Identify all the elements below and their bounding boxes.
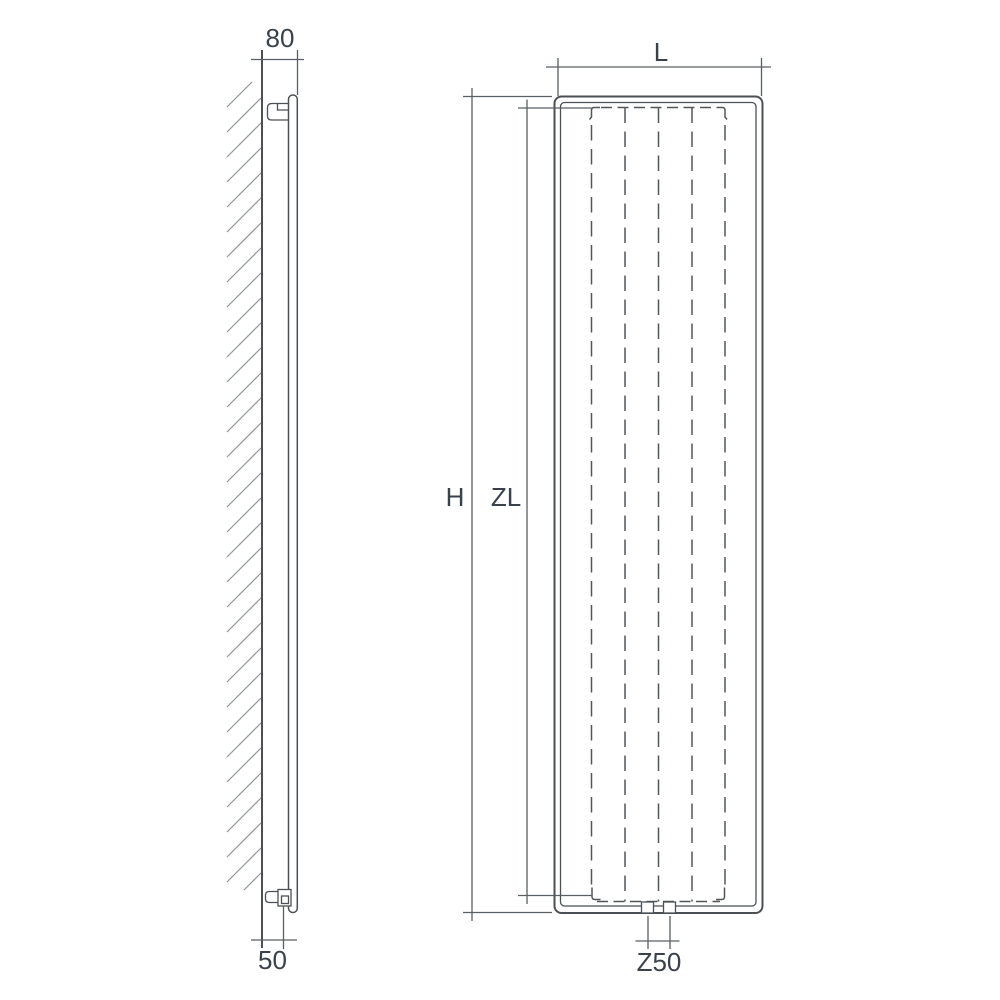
hatch-stroke: [227, 298, 261, 332]
hatch-stroke: [244, 873, 261, 890]
dim-H-label: H: [446, 482, 465, 512]
hatch-stroke: [227, 748, 261, 782]
dim-Z50-label: Z50: [637, 947, 682, 977]
front-view: L H ZL Z50: [446, 37, 771, 977]
hatch-stroke: [227, 498, 261, 532]
dimension-80: 80: [251, 23, 304, 95]
wall-hatching: [227, 82, 261, 890]
connection-left: [642, 902, 654, 913]
bottom-wall-bracket: [266, 890, 292, 907]
hatch-stroke: [227, 698, 261, 732]
top-wall-bracket: [268, 104, 290, 121]
hatch-stroke: [227, 598, 261, 632]
fin-corner-bottom-left: [592, 888, 601, 900]
hatch-stroke: [227, 448, 261, 482]
top-bracket-outer: [268, 104, 290, 121]
hatch-stroke: [227, 82, 252, 107]
hatch-stroke: [227, 398, 261, 432]
radiator-panel-side: [289, 95, 298, 913]
radiator-dimension-drawing: 80 50: [0, 0, 1000, 1000]
hatch-stroke: [227, 673, 261, 707]
dimension-ZL: ZL: [491, 100, 592, 905]
hatch-stroke: [227, 98, 261, 132]
hatch-stroke: [227, 423, 261, 457]
fin-corner-top-left: [590, 108, 601, 120]
drawing-svg: 80 50: [0, 0, 1000, 1000]
hatch-stroke: [227, 848, 261, 882]
dim-ZL-label: ZL: [491, 482, 521, 512]
connection-right: [664, 902, 676, 913]
hatch-stroke: [227, 623, 261, 657]
dim-80-label: 80: [266, 23, 295, 53]
hatch-stroke: [227, 223, 261, 257]
hatch-stroke: [227, 523, 261, 557]
hatch-stroke: [227, 823, 261, 857]
dim-50-label: 50: [258, 945, 287, 975]
bottom-bracket-arm: [266, 892, 279, 903]
hatch-stroke: [227, 798, 261, 832]
fin-corner-bottom-right: [716, 888, 725, 900]
dimension-50: 50: [251, 906, 297, 975]
hatch-stroke: [227, 723, 261, 757]
hatch-stroke: [227, 248, 261, 282]
fin-assembly-dashed: [590, 108, 728, 902]
top-bracket-inner: [278, 104, 290, 111]
hatch-stroke: [227, 548, 261, 582]
dim-L-label: L: [654, 37, 668, 67]
bottom-connections: [642, 902, 676, 913]
hatch-stroke: [227, 573, 261, 607]
hatch-stroke: [227, 123, 261, 157]
hatch-stroke: [227, 473, 261, 507]
dimension-L: L: [546, 37, 771, 96]
hatch-stroke: [227, 323, 261, 357]
hatch-stroke: [227, 173, 261, 207]
hatch-stroke: [227, 348, 261, 382]
side-view: 80 50: [227, 23, 304, 975]
fin-corner-top-right: [717, 108, 728, 120]
hatch-stroke: [227, 148, 261, 182]
hatch-stroke: [227, 198, 261, 232]
hatch-stroke: [227, 273, 261, 307]
hatch-stroke: [227, 773, 261, 807]
hatch-stroke: [227, 373, 261, 407]
dimension-Z50: Z50: [636, 916, 682, 977]
hatch-stroke: [227, 648, 261, 682]
